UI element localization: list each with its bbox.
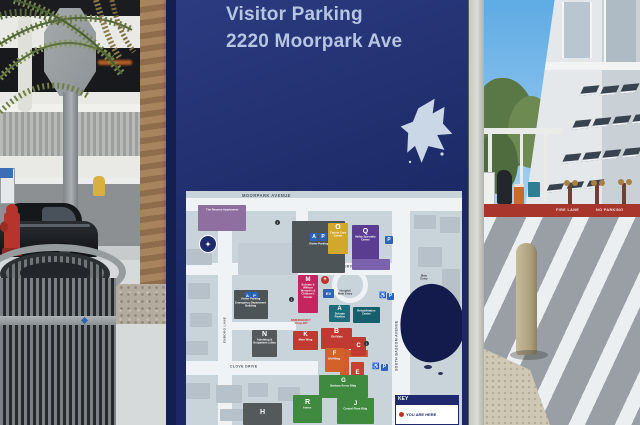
building-name: Sobrato & Willson Women's & Children's C… — [298, 284, 318, 299]
accessible-icon: ♿ — [372, 364, 379, 371]
map-building-g: G Barbara Arons Bldg — [319, 375, 368, 398]
paint-splat — [398, 96, 454, 172]
wayfinding-sign: Visitor Parking 2220 Moorpark Ave — [166, 0, 484, 425]
badge-p-icon: P — [319, 233, 327, 241]
curb-text-fire-lane: FIRE LANE — [556, 208, 579, 213]
building-name: Central Plant Bldg — [337, 408, 374, 411]
building-glass-strip — [604, 0, 636, 62]
emergency-label-line2: Drop-Off — [290, 322, 311, 325]
map-building-r: R Annex — [293, 395, 322, 423]
map-building-n: N Admitting & Outpatient Lobby — [252, 330, 277, 357]
recycle-bin — [528, 182, 540, 197]
campus-map: MOORPARK AVENUE SOUTH BASCOM AVENUE RENO… — [186, 191, 462, 425]
building-letter: H — [243, 409, 282, 417]
parking-icon: P — [381, 364, 388, 371]
sign-face: Visitor Parking 2220 Moorpark Ave — [176, 0, 468, 425]
building-name: Rehabilitation Center — [353, 310, 380, 316]
building-name: The Reserve Apartments — [198, 209, 246, 212]
map-building-emergency-garage: A P Visitor Parking Emergency Department… — [234, 290, 268, 319]
road-service-drive — [232, 322, 296, 330]
street-label-clove: CLOVE DRIVE — [230, 365, 258, 369]
map-building-o: O Cancer Care Center — [328, 223, 348, 254]
graffiti-scuff — [438, 372, 443, 375]
emergency-label: EMERGENCY Drop-Off — [290, 319, 311, 325]
bollard-shadow — [510, 350, 548, 360]
building-name: Old Main — [321, 336, 352, 339]
info-icon: i — [364, 341, 369, 346]
street-label-moorpark: MOORPARK AVENUE — [242, 194, 291, 199]
canopy-post — [544, 134, 547, 202]
building-glass-strip — [562, 2, 592, 58]
building-name: Cancer Care Center — [328, 232, 348, 238]
you-are-here-label: YOU ARE HERE — [406, 412, 436, 417]
parking-icon: P — [387, 293, 394, 300]
graffiti-scuff — [424, 365, 432, 369]
street-label-enborg: ENBORG LANE — [223, 311, 227, 348]
person-sitting — [497, 170, 512, 204]
street-photo-scene: FIRE LANE NO PARKING Visitor Parking 222… — [0, 0, 640, 425]
badge-a-icon: A — [310, 233, 318, 241]
ev-charging-icon: EV — [323, 289, 334, 298]
map-legend: KEY YOU ARE HERE — [395, 395, 459, 425]
building-subname: Emergency Department Building — [234, 302, 268, 308]
parking-icon: P — [385, 236, 393, 244]
building-name: Main Wing — [293, 339, 318, 342]
accessible-icon: ♿ — [379, 293, 386, 300]
map-building-h: H — [243, 403, 282, 425]
map-building-a: A Sobrato Pavilion — [329, 305, 350, 322]
map-building-m: M Sobrato & Willson Women's & Children's… — [298, 275, 318, 313]
map-building-c: C — [351, 337, 366, 356]
info-icon: i — [275, 220, 280, 225]
curb-text-no-parking: NO PARKING — [596, 208, 623, 213]
hydrant-cap — [0, 222, 8, 232]
map-building-q-extension — [352, 259, 390, 270]
emergency-cross-icon: + — [321, 276, 329, 284]
map-building-k: K Main Wing — [293, 331, 318, 350]
map-building-f: F Old Wing — [325, 348, 344, 372]
sign-title-line2: 2220 Moorpark Ave — [226, 28, 466, 55]
sign-right-edge — [467, 0, 484, 425]
right-background: FIRE LANE NO PARKING — [480, 0, 640, 425]
map-building-rehab: Rehabilitation Center — [353, 307, 380, 323]
map-building-apartments: The Reserve Apartments — [198, 205, 246, 231]
building-name: Valley Specialty Center — [352, 236, 379, 242]
trash-can — [0, 244, 126, 425]
left-background — [0, 0, 182, 425]
info-icon: i — [289, 297, 294, 302]
bollard — [516, 243, 537, 355]
main-entry-label: Main Entry — [417, 275, 430, 281]
hospital-main-entry-label: Hospital Main Entry — [338, 290, 353, 296]
palm-fronds — [0, 0, 182, 190]
map-building-j: J Central Plant Bldg — [337, 398, 374, 424]
sign-title: Visitor Parking 2220 Moorpark Ave — [226, 1, 466, 55]
trash-can-band — [0, 316, 116, 325]
county-seal-icon: ✦ — [199, 235, 217, 253]
legend-body: YOU ARE HERE — [395, 404, 459, 425]
building-name: Sobrato Pavilion — [329, 313, 350, 319]
sign-title-line1: Visitor Parking — [226, 1, 466, 28]
orange-barrel — [514, 184, 524, 205]
building-name: Old Wing — [325, 358, 344, 361]
legend-header: KEY — [395, 395, 459, 404]
street-label-bascom: SOUTH BASCOM AVENUE — [395, 329, 399, 371]
trash-can-body — [0, 278, 116, 425]
you-are-here-icon — [399, 412, 404, 417]
building-name: Barbara Arons Bldg — [319, 385, 368, 388]
map-building-b: B Old Main — [321, 328, 352, 349]
building-name: Admitting & Outpatient Lobby — [252, 339, 277, 345]
building-name: Annex — [293, 407, 322, 410]
